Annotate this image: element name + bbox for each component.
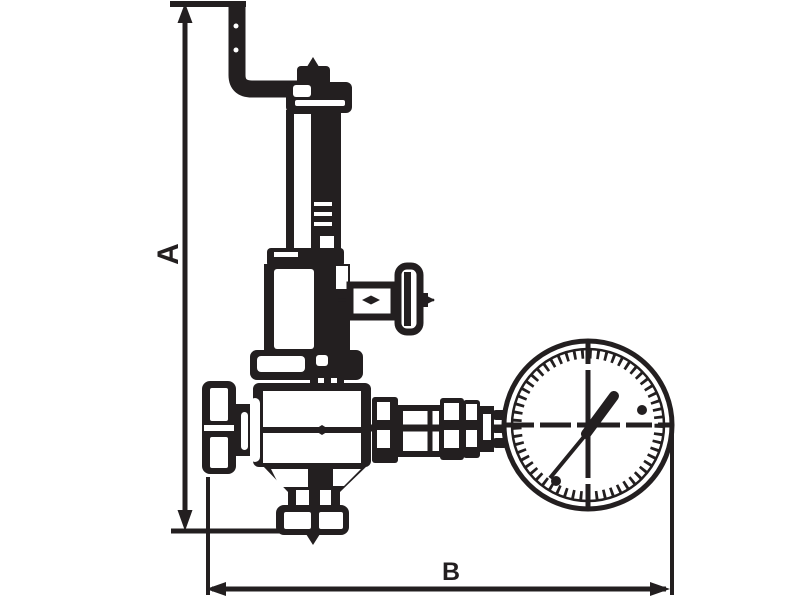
thread-stripe: [314, 202, 332, 206]
nut-window: [444, 403, 459, 420]
flange-window: [319, 512, 343, 529]
flange-slot: [293, 85, 311, 97]
drain-tip: [306, 534, 320, 545]
spring-housing: [264, 248, 350, 353]
nut-facet: [257, 356, 305, 372]
crank-dot: [234, 24, 239, 29]
cap-stripe: [274, 252, 298, 257]
side-tee-valve: [338, 266, 435, 332]
nut-window: [444, 430, 459, 448]
thread-window: [320, 236, 334, 249]
union-nut: [250, 350, 363, 388]
nut-window: [377, 430, 390, 448]
body-chamfer-highlight: [250, 398, 260, 462]
nut-window: [377, 402, 390, 420]
crank-arm: [237, 7, 300, 89]
skirt-face-left: [271, 469, 308, 487]
needle-counterweight: [551, 476, 561, 486]
nut-window: [466, 430, 477, 447]
housing-inner-highlight: [274, 269, 314, 349]
thread-stripe: [314, 212, 332, 216]
dimension-b-label: B: [442, 558, 460, 586]
crank-dot: [234, 48, 239, 53]
valve-technical-drawing: A B: [0, 0, 800, 598]
gauge-pin: [637, 405, 647, 415]
body-upper-face: [263, 391, 361, 427]
tee-handle-bar: [404, 272, 411, 326]
housing-right-highlight: [336, 266, 348, 289]
technical-drawing-canvas: A B: [0, 0, 800, 598]
outlet-coupling: [362, 397, 508, 463]
valve-body: [253, 383, 371, 545]
flange-stripe: [295, 100, 345, 106]
pressure-gauge: [504, 341, 672, 509]
knob-window: [210, 437, 228, 468]
thread-stripe: [314, 222, 332, 226]
flange-window: [284, 512, 311, 529]
inlet-knob: [202, 381, 260, 474]
nut-facet: [316, 355, 328, 366]
outlet-neck-slot: [296, 490, 309, 506]
stem-highlight: [241, 412, 248, 450]
outlet-neck-slot: [320, 490, 331, 506]
arrow-right-icon: [650, 582, 670, 596]
spindle-bonnet: [286, 57, 352, 256]
dimension-a-label: A: [152, 243, 185, 265]
collar-stripe: [483, 414, 491, 440]
knob-window: [210, 388, 228, 421]
arrow-down-icon: [178, 510, 193, 531]
knob-stripe: [204, 425, 234, 431]
bonnet-inner-highlight: [294, 114, 311, 252]
nut-window: [466, 404, 477, 420]
body-lower-face: [263, 433, 361, 463]
crank-handle: [234, 7, 301, 89]
